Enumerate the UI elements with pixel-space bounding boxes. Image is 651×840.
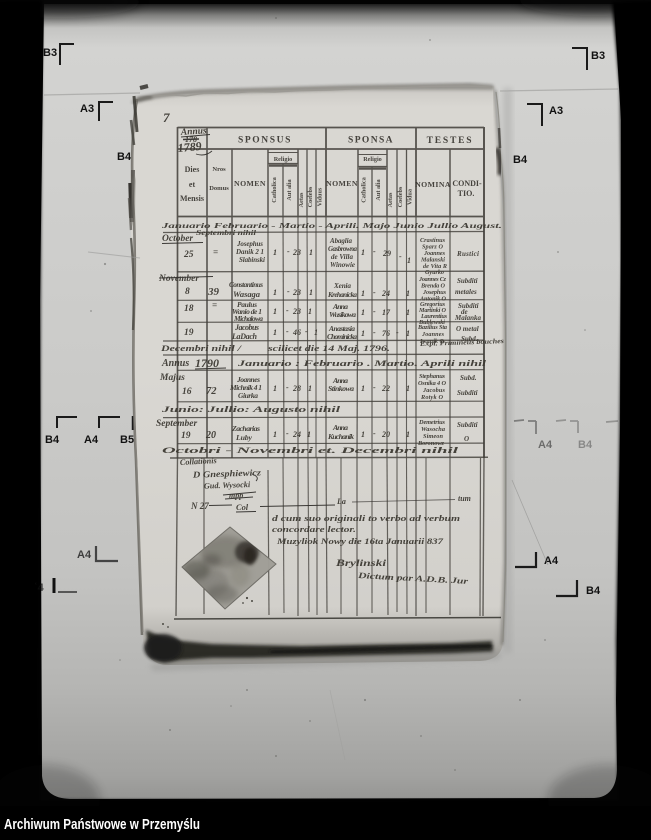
svg-text:Michalowa: Michalowa <box>233 314 263 323</box>
svg-text:A4: A4 <box>538 439 553 451</box>
svg-text:Wusikowa: Wusikowa <box>329 310 356 319</box>
svg-text:d cum suo originali to verbo a: d cum suo originali to verbo ad verbum <box>272 514 460 523</box>
svg-text:72: 72 <box>206 386 217 397</box>
svg-text:Junio: Jullio: Augusto nihil: Junio: Jullio: Augusto nihil <box>160 405 341 414</box>
svg-text:-: - <box>373 429 376 438</box>
svg-text:Subditi: Subditi <box>457 421 478 429</box>
svg-text:LaDach: LaDach <box>231 332 258 341</box>
svg-text:1: 1 <box>273 430 277 439</box>
svg-text:Slabinski: Slabinski <box>239 256 265 264</box>
svg-text:SPONSUS: SPONSUS <box>238 136 292 146</box>
svg-text:A3: A3 <box>549 105 563 117</box>
svg-text:20: 20 <box>381 430 390 439</box>
svg-text:8: 8 <box>185 287 190 297</box>
svg-text:-: - <box>286 327 289 336</box>
svg-text:Aut alia: Aut alia <box>375 179 382 200</box>
svg-text:Collationis: Collationis <box>180 456 217 467</box>
svg-text:Jacobus: Jacobus <box>234 323 259 332</box>
svg-text:-: - <box>373 288 376 297</box>
svg-text:1: 1 <box>308 384 312 393</box>
svg-text:Gasbrowna: Gasbrowna <box>328 245 358 253</box>
svg-text:76: 76 <box>382 329 390 338</box>
svg-text:Giurka: Giurka <box>238 391 258 400</box>
svg-text:Luby: Luby <box>235 433 253 442</box>
svg-text:1789: 1789 <box>177 139 202 155</box>
svg-text:1: 1 <box>361 248 365 257</box>
svg-text:1: 1 <box>361 308 365 317</box>
svg-text:Demetrius: Demetrius <box>418 419 446 426</box>
svg-text:Jacobus: Jacobus <box>422 387 446 394</box>
svg-text:Gud. Wysocki: Gud. Wysocki <box>204 480 251 491</box>
svg-text:17: 17 <box>382 308 391 317</box>
svg-text:1: 1 <box>307 430 311 439</box>
svg-text:B4: B4 <box>586 585 601 597</box>
svg-text:A4: A4 <box>84 434 99 446</box>
svg-text:Danik 2 1: Danik 2 1 <box>235 248 264 256</box>
svg-text:Religio: Religio <box>274 156 293 163</box>
svg-text:Mensis: Mensis <box>180 194 204 203</box>
svg-text:-: - <box>287 287 290 296</box>
svg-text:Krehanicka: Krehanicka <box>327 291 357 299</box>
svg-text:September: September <box>156 419 197 429</box>
svg-text:1: 1 <box>361 430 365 439</box>
svg-text:1: 1 <box>273 384 277 393</box>
svg-text:23: 23 <box>292 288 301 297</box>
svg-text:Subditi: Subditi <box>457 277 478 285</box>
svg-text:1: 1 <box>361 384 365 393</box>
svg-text:Muzyliok Nowy die 16ta Januari: Muzyliok Nowy die 16ta Januarii 837 <box>276 537 444 546</box>
svg-text:Abaglia: Abaglia <box>329 237 353 245</box>
svg-text:A4: A4 <box>77 549 92 561</box>
svg-text:Catholica: Catholica <box>271 177 278 202</box>
svg-text:=: = <box>212 300 217 310</box>
svg-text:SPONSA: SPONSA <box>348 136 394 146</box>
svg-text:1: 1 <box>406 289 410 298</box>
svg-text:Decembri nihil /: Decembri nihil / <box>160 343 243 353</box>
svg-text:TESTES: TESTES <box>427 136 474 146</box>
svg-text:B3: B3 <box>591 50 605 62</box>
svg-text:Subditi: Subditi <box>457 389 478 397</box>
svg-text:Vidua: Vidua <box>407 189 414 205</box>
svg-text:Archiwum Państwowe w Przemyślu: Archiwum Państwowe w Przemyślu <box>4 817 200 833</box>
svg-text:1: 1 <box>361 289 365 298</box>
svg-text:=: = <box>213 247 218 257</box>
svg-text:Dies: Dies <box>185 165 200 174</box>
svg-text:Catholica: Catholica <box>361 177 368 202</box>
svg-text:Constantinus: Constantinus <box>229 281 263 289</box>
svg-text:1: 1 <box>314 328 318 337</box>
svg-text:B4: B4 <box>45 434 60 446</box>
svg-text:22: 22 <box>381 384 390 393</box>
svg-text:-: - <box>305 327 308 336</box>
svg-text:TIO.: TIO. <box>458 189 475 198</box>
svg-text:-: - <box>286 429 289 438</box>
svg-text:-: - <box>373 328 376 337</box>
svg-text:39: 39 <box>207 286 220 298</box>
svg-text:Subd.: Subd. <box>460 374 477 382</box>
svg-text:1: 1 <box>273 288 277 297</box>
svg-text:7: 7 <box>163 110 170 125</box>
svg-text:Malanka: Malanka <box>454 314 482 322</box>
svg-text:Wasaga: Wasaga <box>233 289 261 299</box>
svg-text:1: 1 <box>309 248 313 257</box>
svg-text:Col: Col <box>236 503 249 512</box>
svg-text:23: 23 <box>292 307 301 316</box>
svg-text:19: 19 <box>181 431 191 441</box>
svg-text:NOMEN: NOMEN <box>234 179 266 188</box>
svg-text:23: 23 <box>292 248 301 257</box>
svg-text:18: 18 <box>184 304 194 314</box>
svg-text:Majus: Majus <box>159 373 185 383</box>
svg-text:scilicet die 14 Maj. 1796.: scilicet die 14 Maj. 1796. <box>267 343 390 353</box>
svg-text:Nros: Nros <box>212 166 226 173</box>
svg-text:Winowie: Winowie <box>330 261 355 269</box>
svg-text:O: O <box>464 435 469 443</box>
svg-text:B4: B4 <box>117 151 132 163</box>
svg-text:Osnika 4 O: Osnika 4 O <box>418 380 446 387</box>
svg-text:-: - <box>396 328 399 337</box>
svg-text:NOMEN: NOMEN <box>326 179 358 188</box>
svg-text:Januario : Februario . Martio.: Januario : Februario . Martio. Aprili ni… <box>236 359 487 368</box>
svg-text:24: 24 <box>292 430 301 439</box>
svg-text:NOMINA: NOMINA <box>415 180 451 189</box>
svg-text:Annus: Annus <box>161 358 189 369</box>
svg-text:29: 29 <box>382 249 391 258</box>
svg-text:tum: tum <box>458 494 471 503</box>
svg-text:Joannes: Joannes <box>421 331 445 338</box>
svg-text:Domus: Domus <box>209 185 229 192</box>
svg-text:1: 1 <box>308 307 312 316</box>
svg-text:November: November <box>158 274 199 284</box>
svg-text:Rotyk O: Rotyk O <box>420 394 443 401</box>
svg-text:Coelebs: Coelebs <box>307 186 314 207</box>
svg-text:Chominicka: Chominicka <box>327 332 357 341</box>
svg-text:1: 1 <box>361 329 365 338</box>
svg-text:1: 1 <box>273 248 277 257</box>
svg-text:46: 46 <box>292 328 301 337</box>
svg-text:Stephanus: Stephanus <box>419 373 446 380</box>
svg-text:B4: B4 <box>513 154 528 166</box>
svg-text:Stinkowa: Stinkowa <box>328 384 354 393</box>
svg-text:-: - <box>373 307 376 316</box>
svg-text:-: - <box>287 247 290 256</box>
svg-text:-: - <box>373 247 376 256</box>
svg-text:1: 1 <box>407 256 411 265</box>
svg-text:1: 1 <box>406 430 410 439</box>
svg-text:Zacharias: Zacharias <box>231 424 260 433</box>
svg-text:B5: B5 <box>120 434 134 446</box>
svg-text:1: 1 <box>309 288 313 297</box>
svg-text:Josephus: Josephus <box>236 240 263 248</box>
svg-text:ʿ4: ʿ4 <box>34 582 45 594</box>
svg-text:N 27: N 27 <box>190 501 209 511</box>
svg-text:Viduus: Viduus <box>317 187 324 206</box>
svg-text:Bazilius Sta: Bazilius Sta <box>417 324 447 331</box>
svg-text:Aut alia: Aut alia <box>286 179 293 200</box>
svg-text:Aetas: Aetas <box>387 192 394 207</box>
svg-text:-: - <box>286 306 289 315</box>
svg-text:Octobri - Novembri et. Decembr: Octobri - Novembri et. Decembri nihil <box>162 445 459 455</box>
svg-text:Xenia: Xenia <box>333 282 351 290</box>
svg-text:Kuchanik: Kuchanik <box>327 432 354 441</box>
svg-text:Coelebs: Coelebs <box>397 186 404 207</box>
svg-text:Rustici: Rustici <box>456 250 479 258</box>
svg-text:Wasocha: Wasocha <box>421 426 445 433</box>
svg-text:metales: metales <box>455 288 477 296</box>
svg-text:Gyurko: Gyurko <box>425 269 444 276</box>
svg-text:B3: B3 <box>43 47 57 59</box>
svg-text:-: - <box>399 252 402 261</box>
svg-text:1: 1 <box>273 328 277 337</box>
svg-text:1: 1 <box>406 308 410 317</box>
svg-text:Brylinski: Brylinski <box>335 558 387 568</box>
svg-text:Religio: Religio <box>363 156 382 163</box>
svg-text:Anna: Anna <box>332 423 348 432</box>
svg-text:Simeon: Simeon <box>423 433 443 440</box>
svg-text:20: 20 <box>205 430 216 441</box>
svg-text:19: 19 <box>184 328 194 338</box>
svg-text:et: et <box>189 180 196 189</box>
svg-text:Aetas: Aetas <box>298 192 305 207</box>
svg-text:1: 1 <box>273 307 277 316</box>
svg-text:24: 24 <box>381 289 390 298</box>
svg-text:1: 1 <box>406 384 410 393</box>
svg-text:A3: A3 <box>80 103 94 115</box>
svg-text:25: 25 <box>183 250 194 260</box>
svg-text:O metal: O metal <box>456 325 479 333</box>
svg-text:-: - <box>373 383 376 392</box>
svg-text:16: 16 <box>182 387 192 397</box>
svg-text:Septembri nihil: Septembri nihil <box>196 228 257 237</box>
svg-text:B4: B4 <box>578 439 593 451</box>
svg-text:28: 28 <box>292 384 301 393</box>
svg-text:1: 1 <box>406 329 410 338</box>
svg-text:de Villa: de Villa <box>331 253 354 261</box>
svg-text:-: - <box>286 383 289 392</box>
svg-text:concordare lector.: concordare lector. <box>272 525 356 534</box>
svg-text:CONDI-: CONDI- <box>452 179 482 188</box>
svg-text:La: La <box>336 497 346 506</box>
